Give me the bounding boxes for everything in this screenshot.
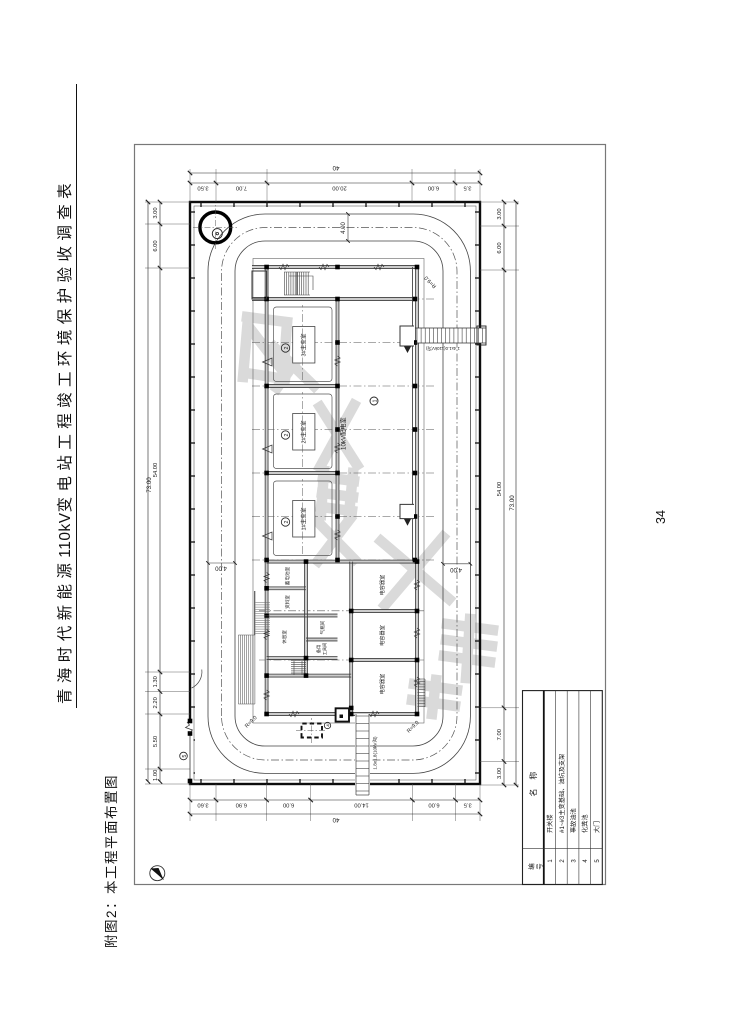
svg-text:2: 2 [284, 520, 290, 523]
svg-text:号: 号 [536, 863, 544, 870]
svg-text:R=9.0: R=9.0 [406, 720, 421, 735]
svg-text:7.00: 7.00 [497, 729, 503, 740]
svg-text:3#主变室: 3#主变室 [300, 333, 308, 356]
svg-text:资料室: 资料室 [284, 595, 291, 609]
svg-text:3.00: 3.00 [497, 768, 503, 779]
svg-text:2: 2 [284, 346, 290, 349]
svg-text:1.8x1.8(10kV沟): 1.8x1.8(10kV沟) [372, 736, 379, 770]
svg-text:73.00: 73.00 [146, 477, 153, 493]
svg-text:6.00: 6.00 [428, 185, 439, 191]
svg-text:6.00: 6.00 [153, 240, 159, 251]
svg-text:2: 2 [284, 433, 290, 436]
svg-text:休息室: 休息室 [281, 630, 288, 644]
svg-text:编: 编 [527, 863, 536, 870]
svg-text:电容器室: 电容器室 [378, 575, 386, 596]
svg-text:2.20: 2.20 [153, 697, 159, 708]
svg-text:1.00: 1.00 [153, 770, 159, 781]
svg-text:备用: 备用 [315, 645, 322, 653]
svg-text:蓄电池室: 蓄电池室 [284, 566, 291, 585]
svg-text:2#主变室: 2#主变室 [300, 420, 308, 443]
svg-text:7.00: 7.00 [236, 185, 247, 191]
svg-text:6.00: 6.00 [283, 802, 294, 808]
svg-text:3: 3 [572, 859, 578, 863]
svg-text:3.00: 3.00 [497, 208, 503, 219]
svg-text:40: 40 [332, 816, 339, 823]
svg-text:4: 4 [583, 859, 589, 863]
svg-text:3.60: 3.60 [197, 802, 208, 808]
svg-text:40: 40 [332, 164, 339, 171]
svg-text:R=9.0: R=9.0 [424, 274, 439, 289]
svg-text:54.00: 54.00 [497, 482, 503, 497]
svg-text:4: 4 [326, 724, 331, 727]
svg-text:1.4x1.0(110kV沟): 1.4x1.0(110kV沟) [426, 345, 460, 352]
svg-text:5.50: 5.50 [153, 736, 159, 747]
svg-text:1: 1 [372, 400, 378, 403]
svg-text:名 称: 名 称 [528, 772, 538, 797]
svg-text:5: 5 [182, 754, 188, 757]
svg-text:电容器室: 电容器室 [378, 625, 386, 646]
svg-text:6.90: 6.90 [236, 802, 247, 808]
svg-text:5: 5 [595, 859, 601, 863]
svg-text:化粪池: 化粪池 [581, 814, 589, 833]
svg-text:4.00: 4.00 [450, 566, 462, 572]
svg-text:1.30: 1.30 [153, 676, 159, 687]
svg-text:3.5: 3.5 [464, 802, 472, 808]
svg-text:54.00: 54.00 [153, 463, 159, 478]
svg-text:3.5: 3.5 [463, 185, 471, 191]
svg-text:大门: 大门 [593, 821, 601, 833]
svg-text:事故油池: 事故油池 [570, 808, 578, 833]
svg-text:2: 2 [560, 859, 566, 863]
svg-text:工具间: 工具间 [321, 643, 328, 656]
svg-text:#1~#3主变基础、油坑及支架: #1~#3主变基础、油坑及支架 [558, 754, 566, 833]
svg-text:14.00: 14.00 [354, 802, 369, 808]
svg-text:73.00: 73.00 [509, 495, 516, 511]
svg-text:气瓶间: 气瓶间 [319, 620, 326, 634]
svg-text:3.50: 3.50 [197, 185, 208, 191]
svg-text:6.00: 6.00 [497, 242, 503, 253]
svg-text:4.00: 4.00 [341, 222, 347, 234]
svg-text:20.00: 20.00 [332, 185, 347, 191]
svg-text:3.00: 3.00 [153, 207, 159, 218]
svg-text:1#主变室: 1#主变室 [300, 507, 308, 530]
svg-text:1: 1 [548, 859, 554, 863]
svg-text:电容器室: 电容器室 [378, 674, 386, 695]
svg-text:R=9.0: R=9.0 [244, 715, 259, 730]
svg-text:4.00: 4.00 [215, 565, 227, 571]
svg-text:6.00: 6.00 [428, 802, 439, 808]
svg-text:开关楼: 开关楼 [546, 814, 554, 833]
